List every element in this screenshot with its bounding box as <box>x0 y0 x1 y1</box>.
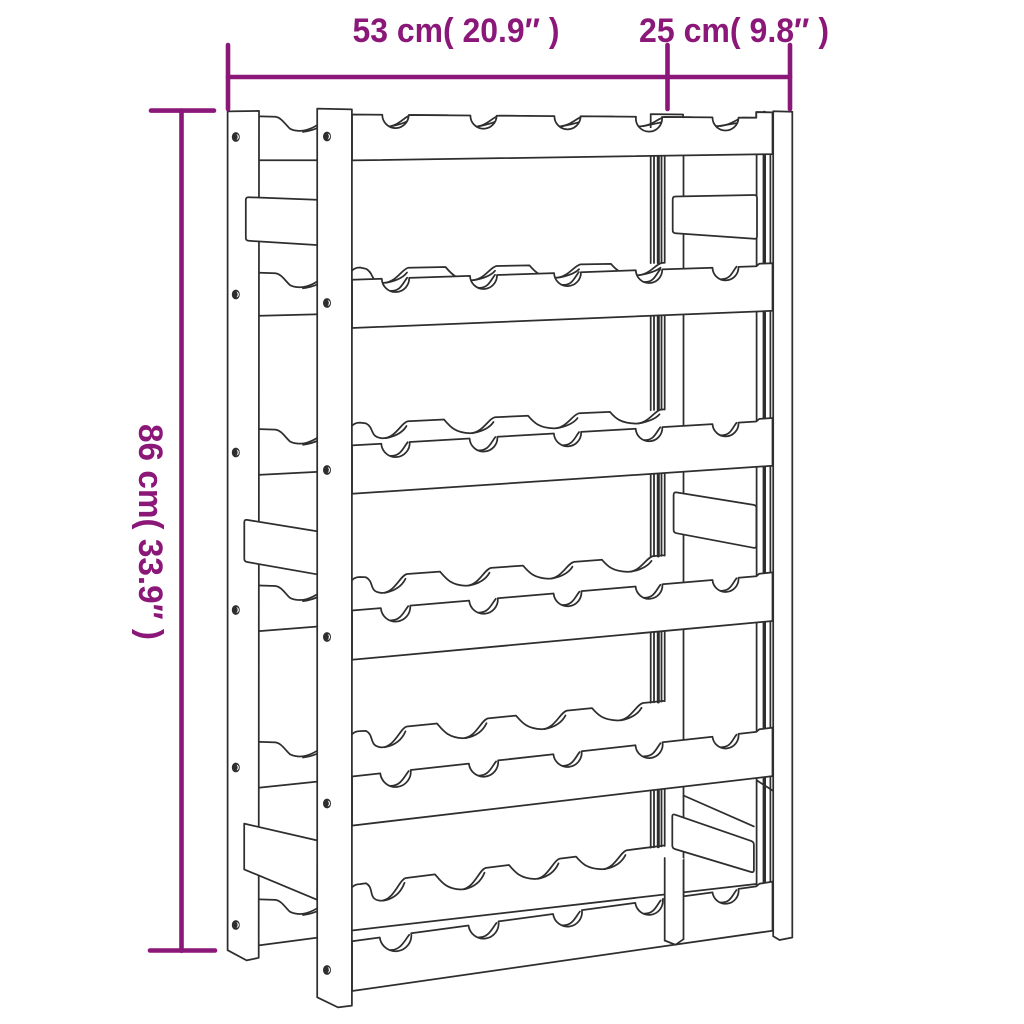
svg-text:86 cm( 33.9″ ): 86 cm( 33.9″ ) <box>131 424 169 640</box>
svg-text:25 cm( 9.8″ ): 25 cm( 9.8″ ) <box>639 12 829 50</box>
svg-text:53 cm( 20.9″ ): 53 cm( 20.9″ ) <box>353 12 560 50</box>
